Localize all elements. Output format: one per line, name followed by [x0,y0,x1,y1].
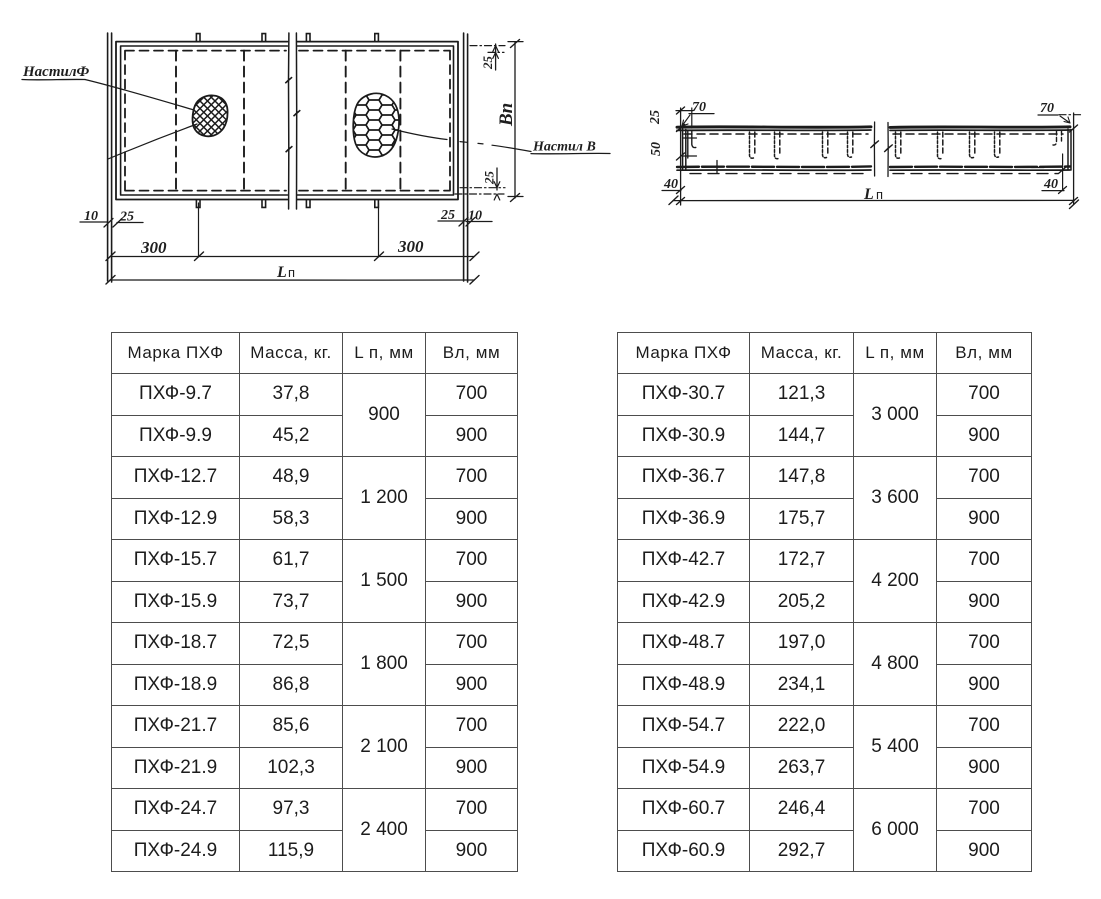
svg-text:300: 300 [140,238,167,257]
svg-text:300: 300 [397,237,424,256]
svg-text:25: 25 [482,171,497,186]
svg-text:п: п [288,265,295,280]
svg-text:70: 70 [692,100,706,115]
svg-text:L: L [276,264,287,281]
svg-text:п: п [876,187,883,202]
svg-text:L: L [863,186,874,203]
svg-text:Вп: Вп [496,103,517,127]
svg-text:25: 25 [480,56,495,71]
svg-text:НастилФ: НастилФ [22,64,90,80]
svg-text:25: 25 [648,110,663,125]
svg-text:Настил В: Настил В [532,140,596,155]
svg-text:50: 50 [649,142,664,156]
svg-text:70: 70 [1040,101,1054,116]
svg-text:40: 40 [1043,177,1058,192]
svg-text:40: 40 [663,177,678,192]
